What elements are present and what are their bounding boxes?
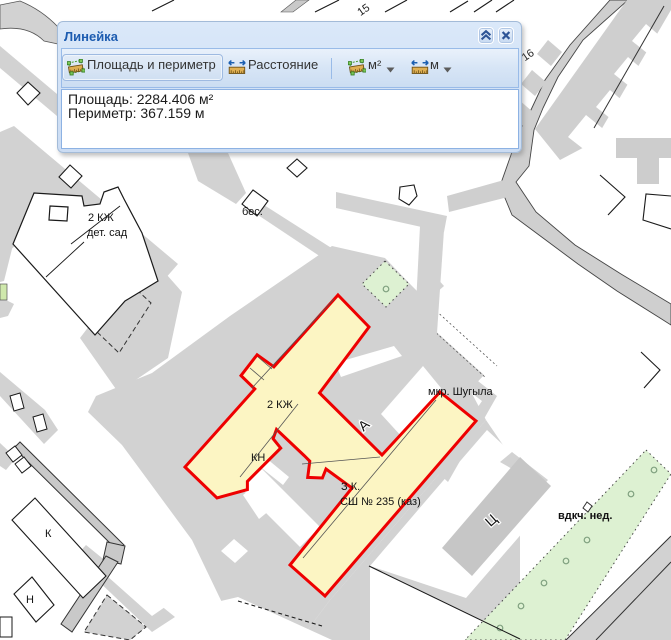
- svg-text:бес.: бес.: [242, 206, 263, 218]
- svg-text:Н: Н: [26, 594, 34, 606]
- svg-text:вдкч. нед.: вдкч. нед.: [558, 510, 612, 522]
- svg-text:мкр. Шугыла: мкр. Шугыла: [428, 386, 494, 398]
- svg-text:СШ № 235 (каз): СШ № 235 (каз): [340, 496, 421, 508]
- svg-text:дет. сад: дет. сад: [87, 227, 128, 239]
- svg-text:2 КЖ: 2 КЖ: [267, 399, 293, 411]
- svg-text:2 КЖ: 2 КЖ: [88, 212, 114, 224]
- svg-text:КН: КН: [251, 452, 265, 464]
- svg-text:З К.: З К.: [341, 481, 360, 493]
- svg-text:К: К: [45, 528, 52, 540]
